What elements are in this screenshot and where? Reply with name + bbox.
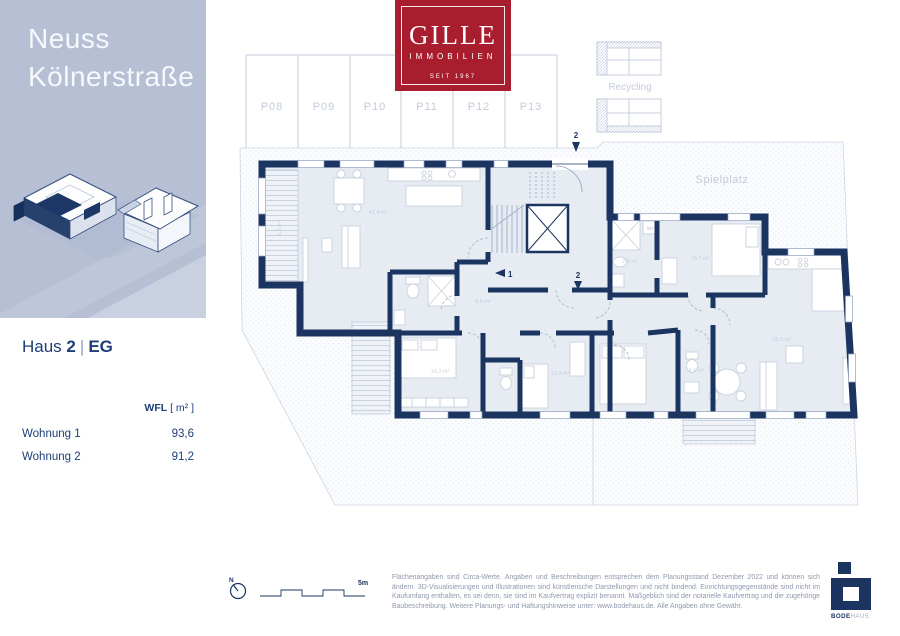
isometric-buildings-illustration [6, 140, 200, 258]
elevator [527, 205, 568, 252]
floor-plan: P08 P09 P10 P11 P12 P13 Recycling Spielp… [225, 30, 900, 560]
wfl-header-unit: [ m² ] [170, 402, 194, 414]
wfl-table: WFL [ m² ] Wohnung 1 93,6 Wohnung 2 91,2 [22, 402, 194, 474]
scale-length-label: 5m [358, 580, 368, 587]
playground-label: Spielplatz [696, 174, 749, 186]
haus-heading: Haus 2|EG [22, 337, 113, 357]
marker-2-outside-number: 2 [574, 131, 579, 140]
table-row: Wohnung 1 93,6 [22, 428, 194, 440]
project-title-line2: Kölnerstraße [28, 58, 194, 96]
bodehaus-logo-mark: BODEHAUS [828, 556, 878, 620]
svg-text:BODEHAUS: BODEHAUS [831, 613, 869, 620]
compass-and-scalebar: N 5m [222, 570, 402, 610]
gille-logo: GILLE IMMOBILIEN SEIT 1967 [395, 0, 511, 91]
apartment-area: 93,6 [172, 428, 194, 440]
room-label-wt: WT [647, 226, 654, 231]
bodehaus-bode: BODE [831, 613, 850, 620]
parking-space-p09: P09 [313, 101, 336, 113]
room-label-hall-w1: 8,6 m² [475, 299, 491, 305]
compass-needle [233, 585, 238, 592]
room-label-bedroom-w2a: 15,7 m² [691, 256, 710, 262]
apartment-area: 91,2 [172, 451, 194, 463]
room-label-terrace: 6,1 m² [277, 220, 283, 236]
scale-bar [260, 590, 365, 596]
project-title: Neuss Kölnerstraße [28, 20, 194, 96]
apartment-label: Wohnung 2 [22, 451, 81, 463]
project-title-line1: Neuss [28, 20, 194, 58]
parking-space-p11: P11 [416, 101, 438, 113]
marker-1-number: 1 [508, 270, 513, 279]
recycling-label: Recycling [608, 82, 651, 93]
room-label-bath-w2b: 4,4 m² [688, 368, 704, 374]
gille-logo-since: SEIT 1967 [395, 74, 511, 80]
wfl-table-header: WFL [ m² ] [22, 402, 194, 414]
haus-number: 2 [66, 337, 75, 356]
disclaimer-text: Flächenangaben sind Circa-Werte. Angaben… [392, 573, 820, 611]
marker-2-inner-number: 2 [576, 271, 581, 280]
room-label-bath-w2: 2,4 m² [622, 259, 638, 265]
room-label-bedroom-w1: 14,2 m² [431, 369, 450, 375]
table-row: Wohnung 2 91,2 [22, 451, 194, 463]
room-label-living-w1: 41,4 m² [369, 210, 388, 216]
haus-word: Haus [22, 337, 62, 356]
bodehaus-haus: HAUS [850, 613, 869, 620]
sidebar-panel: Neuss Kölnerstraße [0, 0, 206, 318]
terrace-south-w2 [683, 416, 755, 444]
parking-space-p13: P13 [520, 101, 543, 113]
haus-separator: | [76, 337, 88, 356]
wfl-header-label: WFL [144, 402, 167, 414]
north-label: N [229, 577, 234, 584]
parking-space-p10: P10 [364, 101, 387, 113]
room-label-living-w2: 36,5 m² [773, 337, 792, 343]
apartment-label: Wohnung 1 [22, 428, 81, 440]
room-label-bedroom-w2c: 12,4 m² [551, 371, 570, 377]
parking-space-p08: P08 [261, 101, 284, 113]
parking-space-p12: P12 [468, 101, 491, 113]
haus-floor: EG [88, 337, 113, 356]
bodehaus-logo: BODEHAUS [828, 556, 878, 620]
